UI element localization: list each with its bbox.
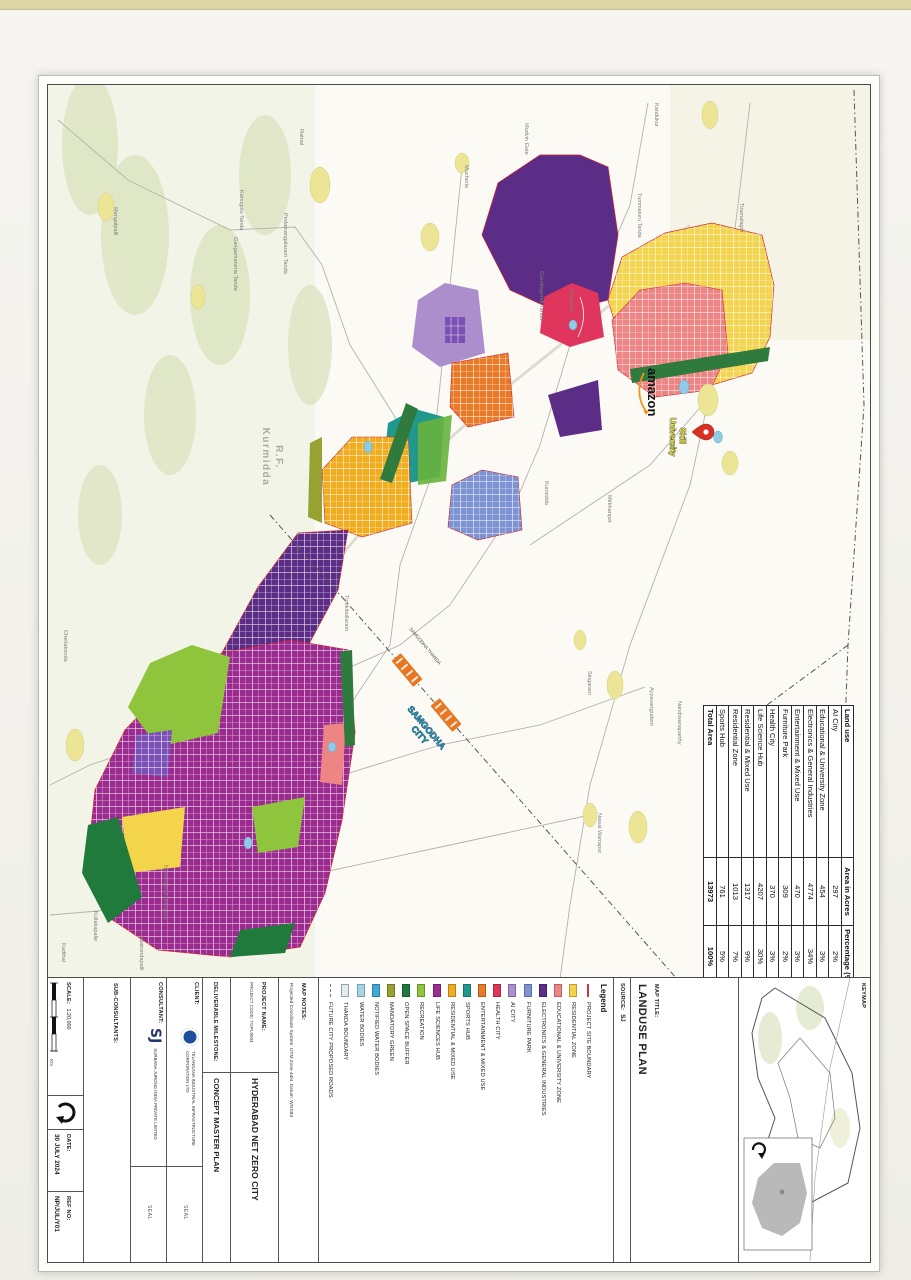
legend-row: MANDATORY GREEN — [383, 984, 398, 1262]
table-cell: 370 — [766, 858, 778, 926]
legend-label: FUTURE CITY PROPOSED ROADS — [327, 1002, 333, 1098]
village-label: Nawal Warrapur — [596, 813, 602, 853]
table-cell: 2% — [829, 926, 841, 979]
legend-row: LIFE SCIENCES HUB — [429, 984, 444, 1262]
legend-chip-box — [554, 984, 562, 997]
legend-label: EDUCATIONAL & UNIVERSITY ZONE — [555, 1002, 561, 1103]
table-cell: AI City — [829, 706, 841, 858]
legend-label: RECREATION — [418, 1002, 424, 1040]
page: { "page": {"top_strip": ""}, "map": { "f… — [0, 0, 911, 1280]
tsiic-logo-icon — [181, 1028, 199, 1046]
table-row: Residential & Mixed Use13179% — [741, 706, 753, 979]
table-cell: Residential & Mixed Use — [741, 706, 753, 858]
legend-chip-box — [433, 984, 441, 997]
legend-row: FURNITURE PARK — [520, 984, 535, 1262]
legend-entries: PROJECT SITE BOUNDARYRESIDENTIAL ZONEEDU… — [323, 984, 596, 1262]
project-name-box: PROJECT NAME: PROJECT CODE: TGPL9004 HYD… — [230, 978, 278, 1262]
subconsultants-label: SUB-CONSULTANTS: — [112, 983, 118, 1043]
consultant-label: CONSULTANT: — [157, 982, 163, 1023]
legend-label: LIFE SCIENCES HUB — [434, 1002, 440, 1060]
table-total-row: Total Area13973100% — [704, 706, 716, 979]
table-cell: 297 — [829, 858, 841, 926]
village-label: Mirkhanpet — [606, 495, 612, 523]
seal-label: SEAL — [182, 1205, 188, 1220]
legend-label: HEALTH CITY — [494, 1002, 500, 1040]
north-arrow-icon — [54, 1102, 76, 1124]
consultant-name: Surbana Jurong India Private Limited — [152, 1048, 158, 1143]
legend-row: RESIDENTIAL ZONE — [566, 984, 581, 1262]
legend-chip-box — [508, 984, 516, 997]
village-label: Talakondapalli — [138, 935, 144, 970]
table-row: AI City2972% — [829, 706, 841, 979]
table-cell: 3% — [816, 926, 828, 979]
drawing-sheet: SAMGODHA THANDA SAMGODHA CITY R.F. Kurmi… — [38, 75, 880, 1272]
table-cell: 761 — [716, 858, 728, 926]
table-row: Entertainment & Mixed Use4703% — [791, 706, 803, 979]
table-cell: Health City — [766, 706, 778, 858]
village-label: Singaram — [586, 671, 592, 695]
date-label: DATE: — [65, 1134, 71, 1152]
legend-chip-box — [539, 984, 547, 997]
village-label: Mudvin Gate — [523, 123, 529, 155]
village-label: Pedamangalaram Tanda — [282, 213, 288, 275]
legend-chip-box — [463, 984, 471, 997]
landuse-table: Land useArea in AcresPercentage (%) AI C… — [703, 705, 854, 978]
source-box: SOURCE: SJ — [613, 978, 630, 1262]
scale-row: SCALE: 1:20,000 Km DATE: — [48, 978, 84, 1262]
table-cell: 100% — [704, 926, 716, 979]
table-cell: 34% — [804, 926, 816, 979]
date-value: 30 JULY 2024 — [52, 1134, 60, 1187]
legend-label: WATER BODIES — [358, 1002, 364, 1046]
legend-row: ENTERTAINMENT & MIXED USE — [475, 984, 490, 1262]
table-cell: 1013 — [729, 858, 741, 926]
legend-row: FUTURE CITY PROPOSED ROADS — [323, 984, 338, 1262]
scale-box: SCALE: 1:20,000 Km — [48, 978, 84, 1096]
north-arrow-box — [48, 1096, 84, 1130]
table-cell: Total Area — [704, 706, 716, 858]
legend-row: PROJECT SITE BOUNDARY — [581, 984, 596, 1262]
map-title: LANDUSE PLAN — [636, 984, 648, 1075]
legend-row: ELECTRONICS & GENERAL INDUSTRIES — [535, 984, 550, 1262]
village-label: Ratnal — [298, 129, 304, 145]
legend-chip-box — [402, 984, 410, 997]
table-row: Electronics & General Industries477434% — [804, 706, 816, 979]
client-name: Telangana Industrial Infrastructure Corp… — [184, 1051, 196, 1146]
svg-text:Kurmidda: Kurmidda — [260, 428, 271, 487]
legend-chip-box — [524, 984, 532, 997]
seal-label: SEAL — [146, 1205, 152, 1220]
legend-label: RESIDENTIAL ZONE — [570, 1002, 576, 1058]
legend-label: SPORTS HUB — [464, 1002, 470, 1040]
map-panel: SAMGODHA THANDA SAMGODHA CITY R.F. Kurmi… — [47, 84, 871, 978]
map-title-label: MAP TITLE: — [653, 984, 659, 1017]
legend-row: NOTIFIED WATER BODIES — [368, 984, 383, 1262]
village-label: Gangamaneria Tanda — [232, 237, 238, 292]
keymap-panel: KEYMAP — [738, 978, 870, 1262]
table-row: Educational & University Zone4543% — [816, 706, 828, 979]
village-label: Mucherla — [463, 165, 469, 189]
village-label: Tirumalagiri — [738, 203, 744, 232]
table-cell: Residential Zone — [729, 706, 741, 858]
legend-row: HEALTH CITY — [490, 984, 505, 1262]
village-label: Mangalpalli — [112, 207, 118, 235]
project-code: PROJECT CODE: TGPL9004 — [249, 982, 254, 1068]
subconsultants-box: SUB-CONSULTANTS: — [83, 978, 130, 1262]
legend-chip-box — [417, 984, 425, 997]
ref-no-label: REF NO: — [65, 1196, 71, 1220]
map-title-box: MAP TITLE: LANDUSE PLAN — [630, 978, 738, 1262]
table-cell: 4774 — [804, 858, 816, 926]
table-row: Sports Hub7615% — [716, 706, 728, 979]
legend-chip-box — [372, 984, 380, 997]
village-label: Tummaluru Tanda — [636, 193, 642, 239]
table-cell: Educational & University Zone — [816, 706, 828, 858]
legend-row: WATER BODIES — [353, 984, 368, 1262]
village-label: Kurmidda — [543, 481, 549, 506]
ref-no-value: NP/JUL/Y01 — [52, 1196, 60, 1258]
legend-box: Legend PROJECT SITE BOUNDARYRESIDENTIAL … — [318, 978, 613, 1262]
consultant-box: CONSULTANT: SJ Surbana Jurong India Priv… — [130, 978, 166, 1262]
table-cell: 470 — [791, 858, 803, 926]
table-cell: 309 — [779, 858, 791, 926]
legend-label: AI CITY — [509, 1002, 515, 1023]
scale-km-label: Km — [49, 1059, 54, 1066]
table-cell: 30% — [754, 926, 766, 979]
table-cell: 454 — [816, 858, 828, 926]
project-name-label: PROJECT NAME: — [260, 982, 266, 1031]
village-label: Kandukur — [653, 103, 659, 127]
keymap-label: KEYMAP — [860, 983, 866, 1008]
table-cell: 9% — [741, 926, 753, 979]
client-box: CLIENT: Telangana Industrial Infrastruct… — [166, 978, 202, 1262]
legend-label: PROJECT SITE BOUNDARY — [585, 1002, 591, 1078]
table-cell: Entertainment & Mixed Use — [791, 706, 803, 858]
table-header-cell: Percentage (%) — [841, 926, 853, 979]
legend-chip-line — [587, 984, 589, 997]
village-label: Ayyavartgudem — [648, 687, 654, 726]
map-notes-box: MAP NOTES: Projected Coordinate System: … — [278, 978, 318, 1262]
source-value: SJ — [619, 1014, 625, 1021]
legend-chip-box — [387, 984, 395, 997]
table-cell: 13973 — [704, 858, 716, 926]
village-label: Kanugolu Tanda — [238, 190, 244, 231]
table-row: Health City3703% — [766, 706, 778, 979]
deliverable-value: CONCEPT MASTER PLAN — [212, 1078, 221, 1172]
legend-chip-outline — [341, 984, 349, 997]
table-cell: 3% — [766, 926, 778, 979]
svg-text:R.F.: R.F. — [273, 445, 284, 469]
village-label: Sarlapalli — [568, 289, 574, 312]
legend-label: ENTERTAINMENT & MIXED USE — [479, 1002, 485, 1090]
legend-row: OPEN SPACE BUFFER — [399, 984, 414, 1262]
landuse-table-header: Land useArea in AcresPercentage (%) — [841, 706, 853, 979]
table-cell: 3% — [791, 926, 803, 979]
legend-chip-box — [478, 984, 486, 997]
village-label: Tunikibollaram — [343, 595, 349, 632]
table-cell: 1317 — [741, 858, 753, 926]
svg-text:amazon: amazon — [645, 368, 660, 416]
table-cell: 2% — [779, 926, 791, 979]
legend-row: THANDA BOUNDARY — [338, 984, 353, 1262]
legend-row: RESIDENTIAL & MIXED USE — [444, 984, 459, 1262]
deliverable-label: DELIVERABLE MILESTONE: — [212, 982, 218, 1062]
legend-row: SPORTS HUB — [459, 984, 474, 1262]
legend-label: ELECTRONICS & GENERAL INDUSTRIES — [540, 1002, 546, 1116]
client-label: CLIENT: — [193, 982, 199, 1005]
landuse-table-body: AI City2972%Educational & University Zon… — [704, 706, 841, 979]
village-label: Cherlakonda — [62, 630, 68, 663]
map-notes-label: MAP NOTES: — [300, 983, 306, 1020]
legend-label: RESIDENTIAL & MIXED USE — [449, 1002, 455, 1080]
source-label: SOURCE: — [619, 983, 625, 1010]
table-cell: 7% — [729, 926, 741, 979]
table-row: Residential Zone10137% — [729, 706, 741, 979]
legend-label: NOTIFIED WATER BODIES — [373, 1002, 379, 1075]
legend-label: OPEN SPACE BUFFER — [403, 1002, 409, 1065]
deliverable-box: DELIVERABLE MILESTONE: CONCEPT MASTER PL… — [202, 978, 230, 1262]
legend-row: RECREATION — [414, 984, 429, 1262]
village-label: Kadthal — [60, 943, 66, 962]
table-row: Life Science Hub420730% — [754, 706, 766, 979]
client-seal-cell: SEAL — [167, 1166, 202, 1262]
scale-bar — [49, 982, 59, 1056]
sj-logo-icon: SJ — [147, 1028, 163, 1043]
legend-row: EDUCATIONAL & UNIVERSITY ZONE — [550, 984, 565, 1262]
title-block: KEYMAP MAP TITLE: LANDUSE PLAN — [47, 978, 871, 1263]
map-notes-text: Projected Coordinate System: UTM Zone 44… — [287, 983, 294, 1257]
legend-title: Legend — [599, 984, 608, 1262]
legend-chip-dash — [330, 984, 331, 997]
legend-row: AI CITY — [505, 984, 520, 1262]
village-label: Gurralagondi Tanda — [538, 271, 544, 321]
table-cell: Life Science Hub — [754, 706, 766, 858]
table-cell: Electronics & General Industries — [804, 706, 816, 858]
village-label: Nednametla Medipally — [162, 865, 168, 921]
legend-label: MANDATORY GREEN — [388, 1002, 394, 1061]
date-box: DATE: 30 JULY 2024 — [48, 1130, 84, 1192]
legend-chip-box — [357, 984, 365, 997]
table-cell: 5% — [716, 926, 728, 979]
scale-label: SCALE: — [65, 982, 71, 1004]
table-header-cell: Land use — [841, 706, 853, 858]
legend-chip-box — [493, 984, 501, 997]
table-row: Furniture Park3092% — [779, 706, 791, 979]
legend-label: THANDA BOUNDARY — [342, 1002, 348, 1060]
keymap-graphic — [739, 978, 870, 1261]
photo-top-edge — [0, 0, 911, 10]
village-label: Kullakapalle — [92, 911, 98, 941]
project-name: HYDERABAD NET ZERO CITY — [249, 1078, 260, 1201]
village-label: Nandiwanaparthy — [676, 701, 682, 745]
ref-no-box: REF NO: NP/JUL/Y01 — [48, 1192, 84, 1262]
table-header-cell: Area in Acres — [841, 858, 853, 926]
legend-chip-box — [448, 984, 456, 997]
consultant-seal-cell: SEAL — [131, 1166, 166, 1262]
legend-chip-box — [569, 984, 577, 997]
legend-label: FURNITURE PARK — [525, 1002, 531, 1053]
table-cell: 4207 — [754, 858, 766, 926]
table-cell: Furniture Park — [779, 706, 791, 858]
table-cell: Sports Hub — [716, 706, 728, 858]
scale-value: 1:20,000 — [65, 1008, 71, 1029]
